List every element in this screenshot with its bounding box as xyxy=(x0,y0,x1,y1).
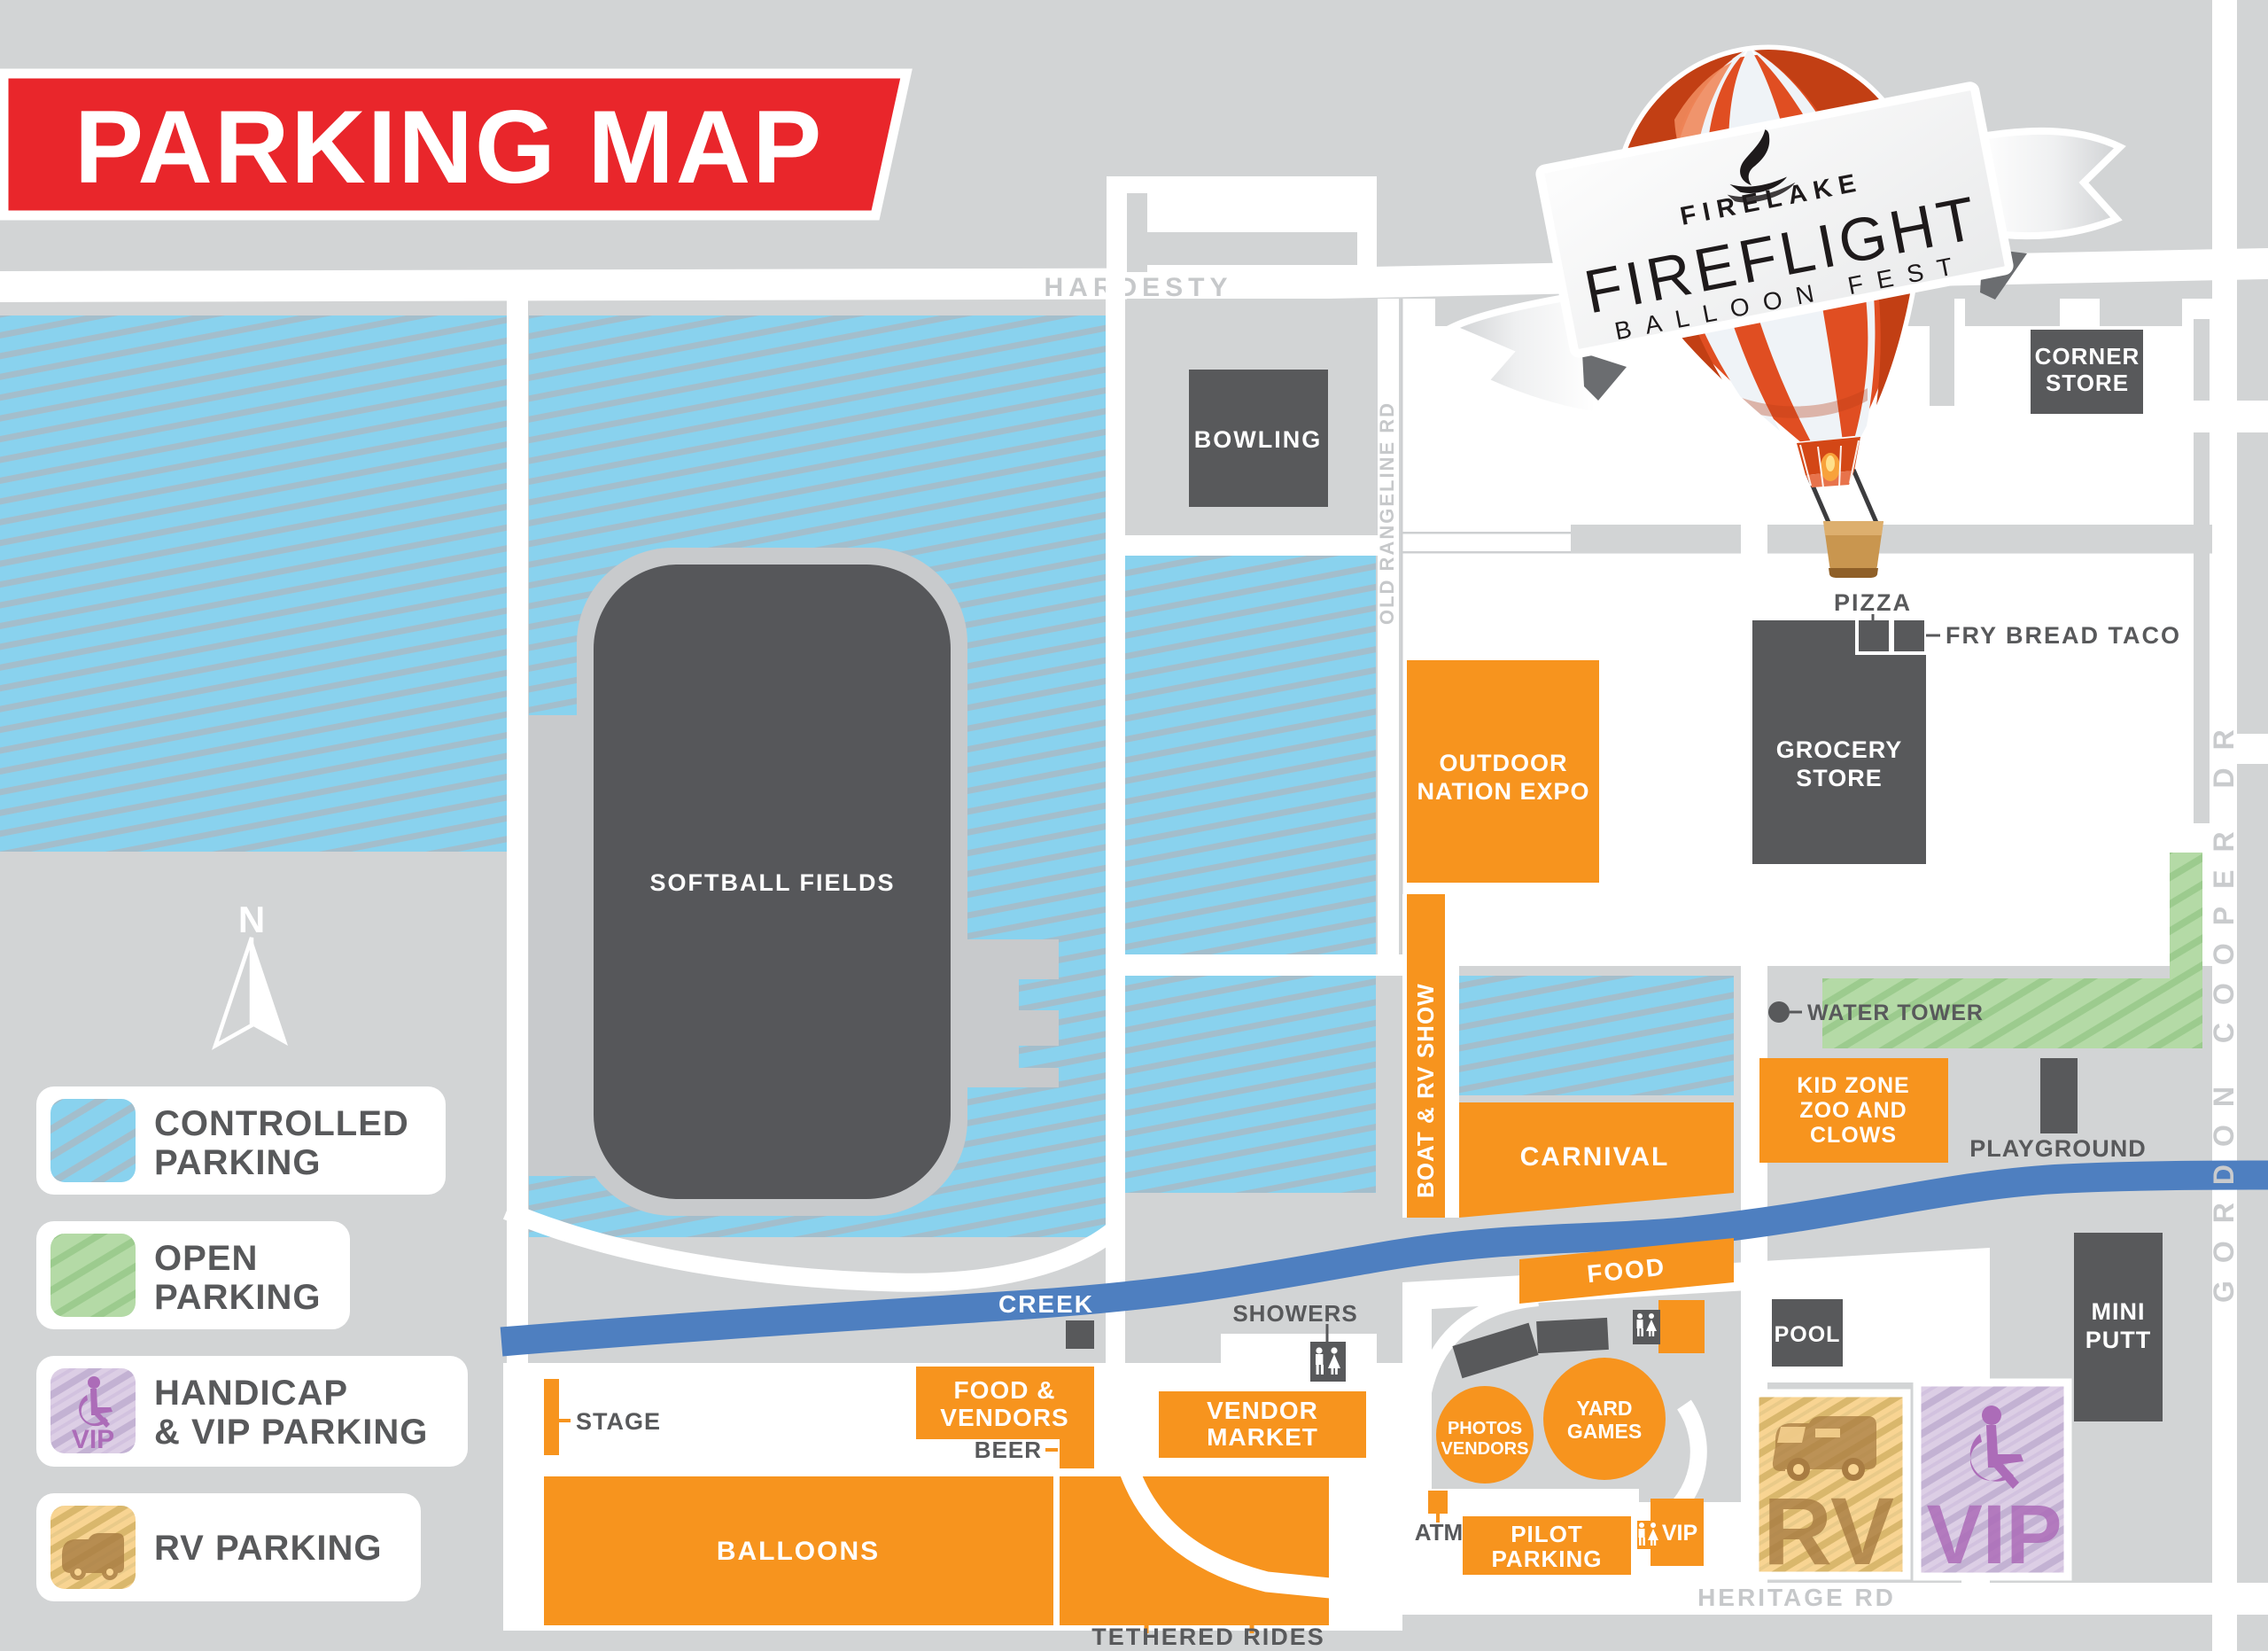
svg-text:FRY BREAD TACO: FRY BREAD TACO xyxy=(1946,622,2181,649)
svg-text:GORDON COOPER DR: GORDON COOPER DR xyxy=(2208,712,2240,1303)
svg-text:VENDOR: VENDOR xyxy=(1207,1397,1318,1424)
svg-text:SOFTBALL FIELDS: SOFTBALL FIELDS xyxy=(650,869,896,896)
svg-text:TETHERED RIDES: TETHERED RIDES xyxy=(1091,1624,1325,1650)
svg-text:PARKING: PARKING xyxy=(154,1143,321,1182)
svg-text:WATER TOWER: WATER TOWER xyxy=(1807,1001,1984,1025)
svg-text:MINI: MINI xyxy=(2092,1298,2146,1325)
svg-text:RV: RV xyxy=(1763,1477,1894,1585)
svg-text:PARKING MAP: PARKING MAP xyxy=(74,89,823,205)
svg-text:CREEK: CREEK xyxy=(998,1290,1094,1318)
svg-text:BALLOONS: BALLOONS xyxy=(717,1537,880,1566)
svg-text:PILOT: PILOT xyxy=(1511,1521,1583,1547)
svg-text:STORE: STORE xyxy=(2046,370,2129,396)
svg-text:BOWLING: BOWLING xyxy=(1194,426,1322,453)
svg-text:YARD: YARD xyxy=(1576,1397,1632,1420)
svg-text:CONTROLLED: CONTROLLED xyxy=(154,1104,409,1143)
svg-text:OLD RANGELINE RD: OLD RANGELINE RD xyxy=(1376,401,1398,625)
svg-text:PHOTOS: PHOTOS xyxy=(1448,1419,1522,1438)
svg-text:OPEN: OPEN xyxy=(154,1239,258,1278)
svg-text:PARKING: PARKING xyxy=(1492,1546,1603,1572)
svg-text:PIZZA: PIZZA xyxy=(1834,589,1912,616)
svg-text:PLAYGROUND: PLAYGROUND xyxy=(1969,1135,2147,1162)
svg-text:STAGE: STAGE xyxy=(576,1408,661,1435)
svg-text:MARKET: MARKET xyxy=(1207,1423,1318,1451)
svg-text:OUTDOOR: OUTDOOR xyxy=(1440,750,1568,776)
svg-text:CLOWS: CLOWS xyxy=(1810,1123,1897,1148)
svg-text:ATM: ATM xyxy=(1415,1519,1463,1546)
svg-text:KID ZONE: KID ZONE xyxy=(1797,1073,1909,1098)
svg-text:PARKING: PARKING xyxy=(154,1278,321,1317)
svg-text:GROCERY: GROCERY xyxy=(1776,736,1903,763)
svg-text:VIP: VIP xyxy=(72,1425,114,1454)
svg-text:FOOD &: FOOD & xyxy=(954,1376,1056,1404)
svg-text:POOL: POOL xyxy=(1775,1322,1841,1347)
svg-text:NATION EXPO: NATION EXPO xyxy=(1417,778,1589,805)
svg-text:HARDESTY: HARDESTY xyxy=(1044,273,1232,302)
svg-text:GAMES: GAMES xyxy=(1567,1420,1642,1443)
svg-text:VIP: VIP xyxy=(1926,1488,2062,1582)
svg-text:CARNIVAL: CARNIVAL xyxy=(1520,1142,1670,1172)
svg-text:BEER: BEER xyxy=(975,1437,1042,1463)
svg-text:STORE: STORE xyxy=(1796,765,1883,791)
svg-text:PUTT: PUTT xyxy=(2085,1327,2152,1353)
svg-text:CORNER: CORNER xyxy=(2035,343,2140,370)
svg-text:RV PARKING: RV PARKING xyxy=(154,1529,382,1568)
svg-text:VIP: VIP xyxy=(1662,1521,1697,1546)
svg-text:& VIP PARKING: & VIP PARKING xyxy=(154,1413,428,1452)
svg-text:HERITAGE RD: HERITAGE RD xyxy=(1697,1584,1896,1611)
svg-text:BOAT & RV SHOW: BOAT & RV SHOW xyxy=(1412,983,1439,1198)
svg-text:N: N xyxy=(238,899,265,940)
svg-text:VENDORS: VENDORS xyxy=(940,1404,1068,1431)
svg-text:VENDORS: VENDORS xyxy=(1441,1439,1529,1459)
svg-text:HANDICAP: HANDICAP xyxy=(154,1374,348,1413)
svg-text:ZOO AND: ZOO AND xyxy=(1799,1098,1907,1123)
svg-text:SHOWERS: SHOWERS xyxy=(1232,1300,1357,1327)
